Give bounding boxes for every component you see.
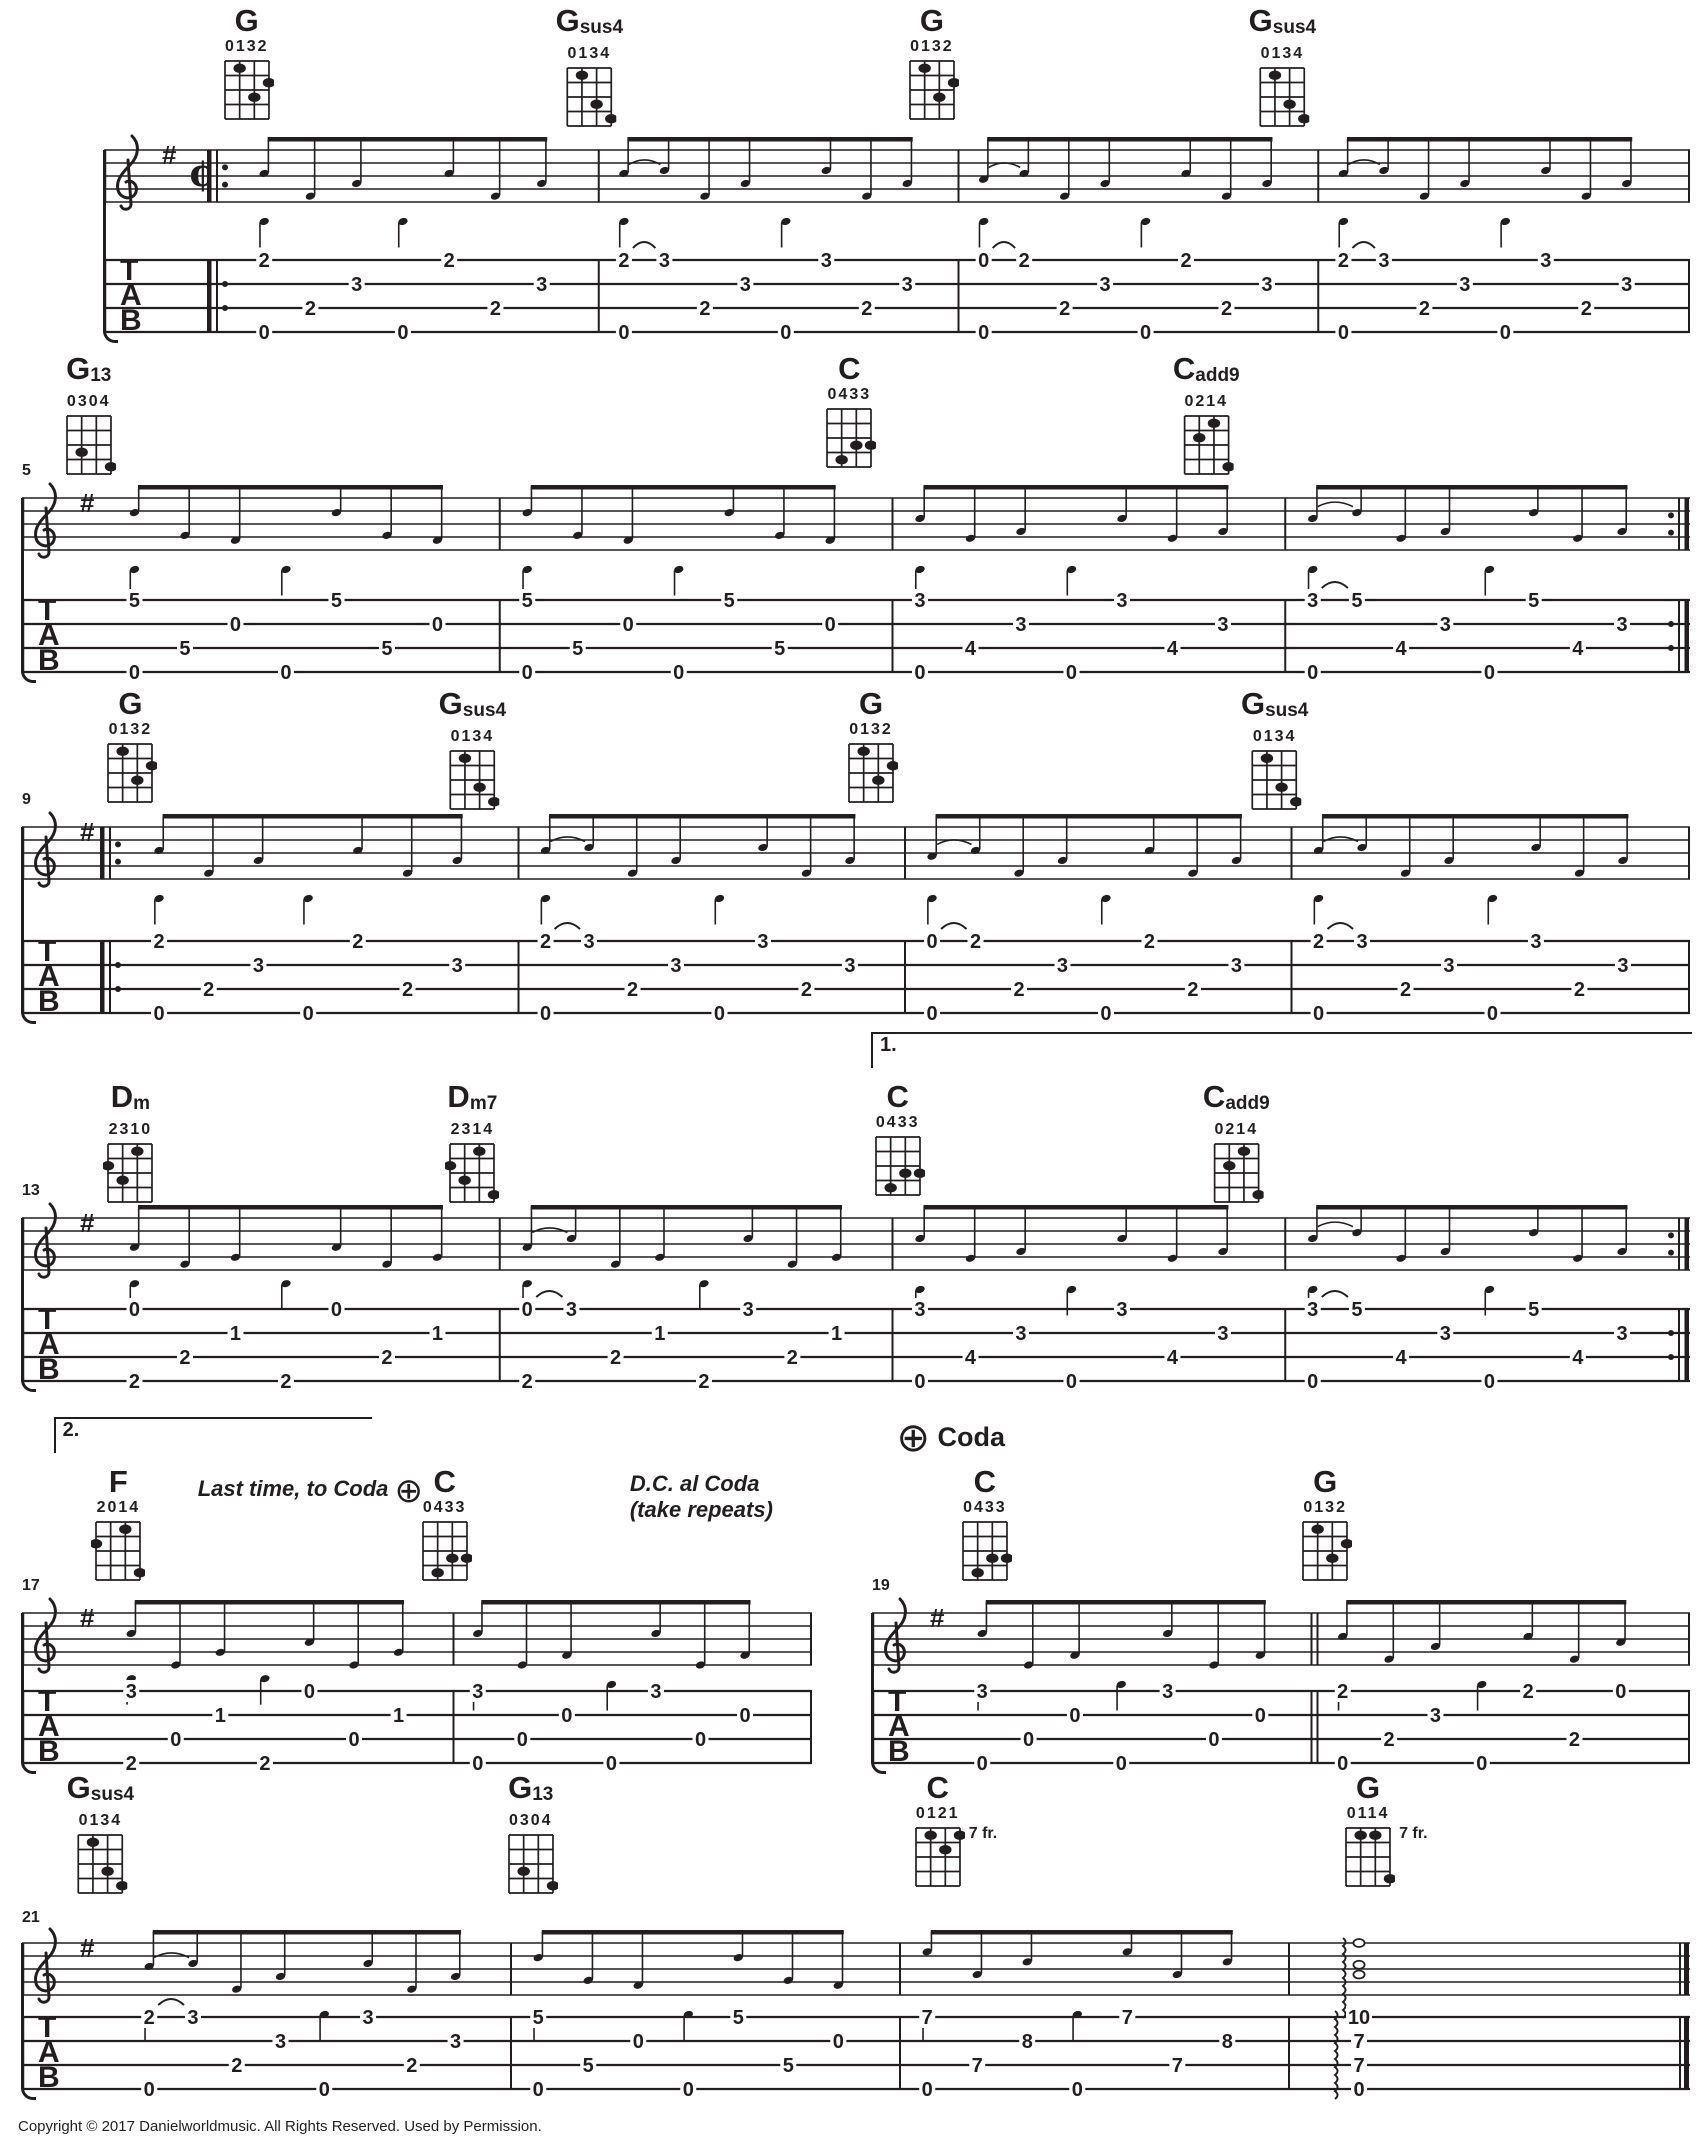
svg-text:3: 3 — [1459, 274, 1470, 296]
svg-text:3: 3 — [566, 1299, 577, 1321]
note-event — [1180, 139, 1191, 178]
note-event — [1528, 487, 1539, 517]
svg-text:3: 3 — [1616, 1323, 1627, 1345]
fretboard-grid — [220, 58, 274, 122]
finger-dot — [445, 1161, 456, 1171]
fretboard-grid — [905, 58, 959, 122]
key-signature-sharp: # — [80, 1933, 95, 1963]
tab-fret-number: 1 — [829, 1322, 845, 1345]
svg-text:0: 0 — [1353, 2079, 1364, 2101]
chord-grid — [73, 1832, 127, 1896]
note-event — [331, 487, 342, 517]
svg-text:3: 3 — [659, 250, 670, 272]
beam — [931, 1930, 1233, 1935]
svg-text:0: 0 — [1255, 1705, 1266, 1727]
tab-fret-number: 2 — [151, 930, 167, 953]
note-event — [1222, 1932, 1233, 1967]
svg-text:5: 5 — [1528, 1299, 1539, 1321]
chord-name: G — [1341, 1773, 1395, 1803]
svg-text:0: 0 — [914, 662, 925, 684]
tab-fret-number: 0 — [1206, 1728, 1222, 1751]
note-event — [1395, 487, 1406, 543]
chord-name: G — [905, 6, 959, 36]
chord-fingering: 0132 — [905, 38, 959, 56]
note-event — [1569, 1602, 1580, 1664]
fretboard-grid — [73, 1832, 127, 1896]
svg-text:2: 2 — [801, 979, 812, 1001]
note-event — [1022, 1932, 1033, 1967]
svg-text:3: 3 — [583, 931, 594, 953]
finger-dot — [103, 1161, 114, 1171]
tab-fret-number: 2 — [229, 2054, 245, 2077]
svg-text:0: 0 — [517, 1729, 528, 1751]
finger-dot — [918, 63, 930, 73]
svg-text:4: 4 — [965, 1347, 977, 1369]
tab-fret-number: 8 — [1219, 2030, 1235, 2053]
svg-text:3: 3 — [821, 250, 832, 272]
tab-fret-number: 1 — [391, 1704, 407, 1727]
svg-text:0: 0 — [129, 662, 140, 684]
treble-clef-icon — [36, 1599, 56, 1672]
tab-fret-number: 4 — [1393, 1346, 1409, 1369]
tab-fret-number: 0 — [227, 613, 243, 636]
tab-fret-number: 2 — [278, 1370, 294, 1393]
tab-fret-number: 3 — [1259, 273, 1275, 296]
chord-name: C — [822, 354, 876, 384]
svg-text:3: 3 — [670, 955, 681, 977]
finger-dot — [547, 1881, 558, 1891]
tab-fret-number: 4 — [1164, 1346, 1180, 1369]
finger-dot — [1284, 99, 1296, 109]
arpeggio-squiggle — [1335, 2011, 1338, 2099]
tab-fret-number: 0 — [830, 2030, 846, 2053]
tab-fret-number: 0 — [519, 1298, 535, 1321]
finger-dot — [488, 797, 499, 807]
svg-text:2: 2 — [1144, 931, 1155, 953]
tie-arc — [555, 923, 580, 929]
svg-text:2: 2 — [1019, 250, 1030, 272]
svg-text:5: 5 — [783, 2055, 794, 2077]
svg-text:5: 5 — [572, 638, 583, 660]
beam — [531, 485, 836, 490]
svg-text:3: 3 — [1616, 614, 1627, 636]
note-event — [1351, 1207, 1362, 1237]
svg-text:3: 3 — [1217, 1323, 1228, 1345]
tab-fret-number: 0 — [912, 1370, 928, 1393]
tab-fret-number: 5 — [570, 637, 586, 660]
system-block: Dm2310Dm72314C0433Cadd902141.13#TAB02212… — [22, 1030, 1690, 1410]
beam — [138, 1205, 443, 1210]
tie-arc — [1322, 582, 1348, 588]
svg-text:2: 2 — [787, 1347, 798, 1369]
svg-text:2: 2 — [540, 931, 551, 953]
finger-dot — [117, 746, 129, 756]
tab-fret-number: 0 — [1098, 1002, 1114, 1025]
note-event — [1122, 1932, 1133, 1956]
tab-fret-number: 3 — [1114, 1298, 1130, 1321]
svg-text:0: 0 — [259, 322, 270, 344]
tab-fret-number: 5 — [1349, 589, 1365, 612]
note-event — [566, 1207, 577, 1243]
svg-text:5: 5 — [1528, 590, 1539, 612]
tab-fret-number: 0 — [616, 321, 632, 344]
chord-name: C — [871, 1082, 925, 1112]
svg-text:5: 5 — [724, 590, 735, 612]
tab-fret-number: 2 — [1578, 297, 1594, 320]
chord-grid — [103, 1141, 157, 1205]
fretboard-grid — [445, 748, 499, 812]
finger-dot — [1001, 1553, 1012, 1563]
tab-fret-number: 7 — [1169, 2054, 1185, 2077]
fretboard-grid — [103, 1141, 157, 1205]
chord-name: G — [220, 6, 274, 36]
svg-text:2: 2 — [231, 2055, 242, 2077]
note-event — [1144, 816, 1155, 855]
note-event — [1528, 1207, 1539, 1237]
finger-dot — [1261, 753, 1273, 763]
tab-fret-number: 2 — [1178, 249, 1194, 272]
svg-text:2: 2 — [698, 1371, 709, 1393]
finger-dot — [1276, 782, 1288, 792]
svg-text:2: 2 — [699, 298, 710, 320]
tab-fret-number: 3 — [740, 1298, 756, 1321]
beam — [481, 1600, 750, 1605]
finger-dot — [1298, 114, 1309, 124]
chord-grid — [418, 1519, 472, 1583]
tab-fret-number: 3 — [1114, 589, 1130, 612]
chord-grid — [822, 406, 876, 470]
svg-text:3: 3 — [743, 1299, 754, 1321]
note-event — [1419, 139, 1430, 201]
beam — [1322, 814, 1628, 819]
chord-name: G — [103, 689, 157, 719]
svg-text:4: 4 — [1396, 638, 1408, 660]
tab-fret-number: 0 — [671, 661, 687, 684]
finger-dot — [850, 440, 862, 450]
svg-text:3: 3 — [1057, 955, 1068, 977]
volta-number: 1. — [873, 1034, 897, 1056]
tie-arc — [1352, 242, 1374, 248]
tab-fret-number: 0 — [316, 2078, 332, 2101]
tab-fret-number: 3 — [737, 273, 753, 296]
svg-text:2: 2 — [1187, 979, 1198, 1001]
svg-text:0: 0 — [170, 1729, 181, 1751]
chord-fingering: 0132 — [844, 721, 898, 739]
note-event — [1351, 487, 1362, 517]
chord-name: Gsus4 — [1241, 689, 1308, 726]
finger-dot — [460, 1553, 471, 1563]
chord-grid — [91, 1519, 145, 1583]
tab-fret-number: 5 — [1526, 1298, 1542, 1321]
svg-text:2: 2 — [970, 931, 981, 953]
tab-fret-number: 2 — [859, 297, 875, 320]
svg-text:3: 3 — [1307, 590, 1318, 612]
note-event — [381, 487, 392, 540]
svg-text:3: 3 — [902, 274, 913, 296]
tab-fret-number: 3 — [818, 249, 834, 272]
tab-fret-number: 2 — [1571, 978, 1587, 1001]
svg-text:0: 0 — [1484, 662, 1495, 684]
svg-text:3: 3 — [1116, 590, 1127, 612]
fretboard-grid — [1248, 748, 1302, 812]
tab-fret-number: 7 — [969, 2054, 985, 2077]
svg-text:3: 3 — [450, 2031, 461, 2053]
tab-fret-number: 7 — [919, 2006, 935, 2029]
system-block: G0132Gsus40134G0132Gsus401349#TAB2023022… — [22, 685, 1690, 1065]
svg-text:0: 0 — [695, 1729, 706, 1751]
tab-fret-number: 3 — [360, 2006, 376, 2029]
note-event — [402, 816, 413, 878]
note-event — [774, 487, 785, 540]
tab-fret-number: 2 — [379, 1346, 395, 1369]
svg-text:2: 2 — [129, 1371, 140, 1393]
finger-dot — [948, 78, 959, 88]
tab-fret-number: 0 — [559, 1704, 575, 1727]
chord-diagram: Dm2310 — [103, 1082, 157, 1210]
note-event — [1378, 139, 1389, 175]
tab-fret-number: 2 — [696, 1370, 712, 1393]
note-event — [153, 816, 164, 925]
svg-text:5: 5 — [733, 2007, 744, 2029]
svg-text:5: 5 — [179, 638, 190, 660]
tab-fret-number: 3 — [1054, 954, 1070, 977]
svg-text:0: 0 — [1500, 322, 1511, 344]
svg-text:2: 2 — [1384, 1729, 1395, 1751]
note-event — [1013, 816, 1024, 878]
svg-text:2: 2 — [280, 1371, 291, 1393]
finger-dot — [459, 753, 471, 763]
tab-fret-number: 2 — [968, 930, 984, 953]
svg-text:0: 0 — [623, 614, 634, 636]
note-event — [540, 816, 551, 925]
svg-text:3: 3 — [472, 1681, 483, 1703]
svg-text:1: 1 — [230, 1323, 241, 1345]
finger-dot — [986, 1553, 998, 1563]
chord-fingering: 0134 — [556, 45, 623, 63]
tab-fret-number: 0 — [530, 2078, 546, 2101]
tab-fret-number: 0 — [141, 2078, 157, 2101]
note-event — [659, 139, 670, 175]
svg-text:2: 2 — [406, 2055, 417, 2077]
tab-fret-number: 2 — [1219, 297, 1235, 320]
svg-text:2: 2 — [381, 1347, 392, 1369]
tab-fret-number: 0 — [1069, 2078, 1085, 2101]
chord-fingering: 0132 — [220, 38, 274, 56]
chord-diagram: C01217 fr. — [911, 1773, 965, 1894]
svg-text:2: 2 — [1337, 1681, 1348, 1703]
tab-fret-number: 2 — [616, 249, 632, 272]
note-event — [970, 816, 981, 855]
tie-arc — [1318, 1222, 1353, 1227]
note-event — [821, 139, 832, 175]
tab-fret-number: 1 — [652, 1322, 668, 1345]
tab-fret-number: 3 — [912, 589, 928, 612]
svg-text:2: 2 — [1569, 1729, 1580, 1751]
svg-text:3: 3 — [740, 274, 751, 296]
tab-fret-number: 3 — [1457, 273, 1473, 296]
fretboard-grid — [418, 1519, 472, 1583]
finger-dot — [91, 1539, 102, 1549]
finger-dot — [116, 1881, 127, 1891]
tab-fret-number: 0 — [778, 321, 794, 344]
finger-dot — [87, 1837, 99, 1847]
tab-fret-number: 0 — [1481, 1370, 1497, 1393]
finger-dot — [233, 63, 245, 73]
svg-text:7: 7 — [972, 2055, 983, 2077]
chord-name: Gsus4 — [556, 6, 623, 43]
tab-fret-number: 2 — [1416, 297, 1432, 320]
svg-text:0: 0 — [348, 1729, 359, 1751]
beam — [1346, 1600, 1626, 1605]
svg-text:8: 8 — [1222, 2031, 1233, 2053]
tab-staff: TAB505005505050055030430343305430543 — [22, 576, 1690, 698]
tab-fret-number: 0 — [1067, 1704, 1083, 1727]
note-event — [259, 139, 270, 248]
svg-text:7: 7 — [1122, 2007, 1133, 2029]
note-event — [1356, 816, 1367, 852]
finger-dot — [1384, 1874, 1395, 1884]
note-event — [444, 139, 455, 178]
tab-fret-number: 3 — [1437, 1322, 1453, 1345]
finger-dot — [117, 1175, 129, 1185]
tab-fret-number: 2 — [697, 297, 713, 320]
note-event — [610, 1207, 621, 1269]
tab-fret-number: 0 — [126, 661, 142, 684]
tab-fret-number: 0 — [514, 1728, 530, 1751]
svg-text:2: 2 — [618, 250, 629, 272]
tab-staff: TAB203230323505005507078077810770 — [22, 1993, 1690, 2115]
svg-text:0: 0 — [714, 1003, 725, 1025]
tab-fret-number: 5 — [580, 2054, 596, 2077]
note-event — [627, 816, 638, 878]
tab-fret-number: 3 — [273, 2030, 289, 2053]
svg-text:0: 0 — [1313, 1003, 1324, 1025]
note-event — [1540, 139, 1551, 175]
tab-fret-number: 0 — [822, 613, 838, 636]
tab-fret-number: 3 — [1614, 1322, 1630, 1345]
tab-fret-number: 4 — [962, 637, 978, 660]
beam — [923, 485, 1228, 490]
tab-fret-number: 3 — [250, 954, 266, 977]
fretboard-grid — [871, 1134, 925, 1198]
note-event — [743, 1207, 754, 1243]
coda-symbol-icon: ⊕ — [394, 1472, 423, 1510]
svg-text:3: 3 — [757, 931, 768, 953]
note-event — [801, 816, 812, 878]
key-signature-sharp: # — [80, 817, 95, 847]
note-event — [1574, 816, 1585, 878]
tab-fret-number: 2 — [1335, 249, 1351, 272]
chord-grid — [504, 1832, 558, 1896]
tab-fret-number: 2 — [1381, 1728, 1397, 1751]
note-event — [583, 1932, 594, 1985]
tab-fret-number: 3 — [1437, 613, 1453, 636]
tab-fret-number: 2 — [519, 1370, 535, 1393]
note-event — [926, 816, 937, 925]
tab-fret-number: 0 — [680, 2078, 696, 2101]
svg-text:7: 7 — [1353, 2031, 1364, 2053]
note-event — [304, 1602, 315, 1647]
svg-text:0: 0 — [230, 614, 241, 636]
svg-text:0: 0 — [926, 931, 937, 953]
svg-text:3: 3 — [351, 274, 362, 296]
svg-text:0: 0 — [922, 2079, 933, 2101]
svg-text:2: 2 — [144, 2007, 155, 2029]
chord-fingering: 0114 — [1341, 1805, 1395, 1823]
svg-text:0: 0 — [825, 614, 836, 636]
fretboard-grid — [844, 741, 898, 805]
svg-text:4: 4 — [1396, 1347, 1408, 1369]
tab-fret-number: 0 — [919, 2078, 935, 2101]
tab-fret-number: 2 — [1311, 930, 1327, 953]
svg-text:5: 5 — [533, 2007, 544, 2029]
beam — [138, 485, 443, 490]
svg-text:0: 0 — [522, 1299, 533, 1321]
svg-text:7: 7 — [1172, 2055, 1183, 2077]
svg-text:0: 0 — [1023, 1729, 1034, 1751]
finger-dot — [132, 775, 144, 785]
svg-text:5: 5 — [1351, 1299, 1362, 1321]
volta-bracket: 2. — [54, 1417, 372, 1453]
svg-text:3: 3 — [1440, 614, 1451, 636]
svg-text:5: 5 — [522, 590, 533, 612]
chord-fingering: 0132 — [1298, 1499, 1352, 1517]
chord-grid — [62, 413, 116, 477]
tab-fret-number: 0 — [630, 2030, 646, 2053]
svg-text:0: 0 — [129, 1299, 140, 1321]
note-event — [1581, 139, 1592, 201]
svg-text:2: 2 — [259, 250, 270, 272]
note-event — [1523, 1602, 1534, 1641]
note-event — [1338, 139, 1349, 248]
tab-fret-number: 2 — [1520, 1680, 1536, 1703]
beam — [987, 137, 1272, 142]
note-event — [1059, 139, 1070, 201]
tab-fret-number: 2 — [798, 978, 814, 1001]
finger-dot — [119, 1524, 131, 1534]
finger-dot — [971, 1568, 983, 1578]
note-event — [432, 1207, 443, 1262]
chord-fingering: 0132 — [103, 721, 157, 739]
svg-text:1: 1 — [215, 1705, 226, 1727]
svg-text:1: 1 — [831, 1323, 842, 1345]
chord-fingering: 0134 — [439, 728, 506, 746]
note-event — [1221, 139, 1232, 201]
tab-fret-number: 0 — [395, 321, 411, 344]
chord-diagram: G0132 — [1298, 1467, 1352, 1588]
chord-fingering: 2314 — [445, 1121, 499, 1139]
note-event — [352, 816, 363, 855]
svg-text:3: 3 — [1621, 274, 1632, 296]
chord-grid — [844, 741, 898, 805]
svg-text:2: 2 — [1313, 931, 1324, 953]
beam — [1316, 1205, 1627, 1210]
svg-text:3: 3 — [1015, 614, 1026, 636]
tab-fret-number: 0 — [976, 249, 992, 272]
chord-name: Gsus4 — [1249, 6, 1316, 43]
tab-fret-number: 0 — [1484, 1002, 1500, 1025]
coda-marker: ⊕ Coda — [897, 1415, 1006, 1461]
chord-grid — [445, 748, 499, 812]
note-event — [757, 816, 768, 852]
svg-text:3: 3 — [1530, 931, 1541, 953]
svg-text:4: 4 — [965, 638, 977, 660]
tab-fret-number: 0 — [1021, 1728, 1037, 1751]
finger-dot — [576, 70, 588, 80]
tie-arc — [993, 242, 1015, 248]
svg-text:2: 2 — [1013, 979, 1024, 1001]
chord-name: Cadd9 — [1203, 1082, 1270, 1119]
